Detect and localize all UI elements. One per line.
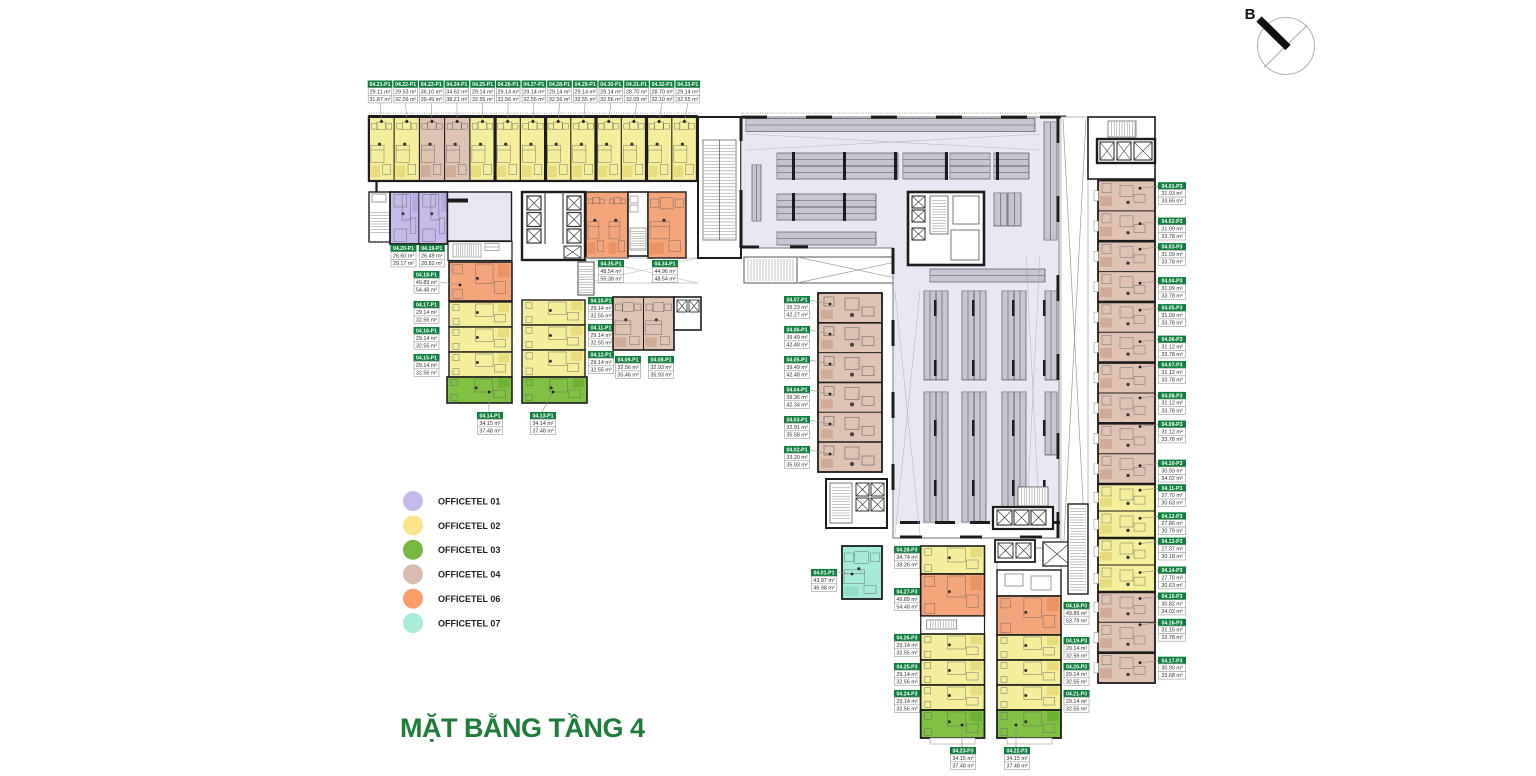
svg-text:04.25-P1: 04.25-P1 — [472, 82, 493, 88]
svg-text:31.09 m²: 31.09 m² — [1161, 252, 1182, 258]
svg-text:29.17 m²: 29.17 m² — [393, 261, 414, 267]
svg-text:31.15 m²: 31.15 m² — [1161, 628, 1182, 634]
svg-text:42.48 m²: 42.48 m² — [786, 342, 807, 348]
svg-text:28.70 m²: 28.70 m² — [626, 89, 647, 95]
svg-text:27.86 m²: 27.86 m² — [1161, 521, 1182, 527]
svg-text:54.48 m²: 54.48 m² — [896, 604, 917, 610]
svg-text:04.25-P3: 04.25-P3 — [896, 665, 917, 671]
svg-text:34.15 m²: 34.15 m² — [1006, 756, 1027, 762]
svg-text:04.32-P1: 04.32-P1 — [652, 82, 673, 88]
svg-text:29.14 m²: 29.14 m² — [896, 672, 917, 678]
svg-text:32.55 m²: 32.55 m² — [590, 367, 611, 373]
svg-text:04.05-P1: 04.05-P1 — [786, 358, 807, 364]
svg-text:04.21-P3: 04.21-P3 — [1066, 692, 1087, 698]
svg-text:48.54 m²: 48.54 m² — [654, 276, 675, 282]
svg-text:29.53 m²: 29.53 m² — [395, 89, 416, 95]
svg-text:33.78 m²: 33.78 m² — [1161, 635, 1182, 641]
svg-text:32.10 m²: 32.10 m² — [651, 97, 672, 103]
svg-text:30.93 m²: 30.93 m² — [1161, 468, 1182, 474]
svg-text:37.48 m²: 37.48 m² — [952, 763, 973, 769]
svg-text:29.14 m²: 29.14 m² — [590, 333, 611, 339]
svg-text:30.18 m²: 30.18 m² — [1161, 554, 1182, 560]
svg-text:OFFICETEL 01: OFFICETEL 01 — [438, 496, 500, 506]
svg-text:39.49 m²: 39.49 m² — [786, 365, 807, 371]
svg-text:29.14 m²: 29.14 m² — [896, 699, 917, 705]
svg-text:55.38 m²: 55.38 m² — [600, 276, 621, 282]
svg-text:39.36 m²: 39.36 m² — [786, 395, 807, 401]
svg-text:04.30-P1: 04.30-P1 — [600, 82, 621, 88]
svg-text:37.48 m²: 37.48 m² — [479, 428, 500, 434]
svg-text:33.78 m²: 33.78 m² — [1161, 377, 1182, 383]
svg-text:38.21 m²: 38.21 m² — [446, 97, 467, 103]
svg-text:33.68 m²: 33.68 m² — [1161, 673, 1182, 679]
svg-text:04.27-P3: 04.27-P3 — [896, 590, 917, 596]
svg-text:04.21-P1: 04.21-P1 — [369, 82, 390, 88]
svg-text:04.13-P1: 04.13-P1 — [532, 414, 553, 420]
svg-text:04.11-P1: 04.11-P1 — [591, 326, 612, 332]
svg-text:04.11-P3: 04.11-P3 — [1162, 486, 1183, 492]
svg-text:31.09 m²: 31.09 m² — [1161, 286, 1182, 292]
svg-text:44.96 m²: 44.96 m² — [654, 269, 675, 275]
svg-text:04.24-P1: 04.24-P1 — [446, 82, 467, 88]
svg-text:04.28-P3: 04.28-P3 — [896, 548, 917, 554]
svg-text:29.14 m²: 29.14 m² — [523, 89, 544, 95]
svg-text:27.70 m²: 27.70 m² — [1161, 575, 1182, 581]
svg-text:MẶT BẰNG TẦNG 4: MẶT BẰNG TẦNG 4 — [400, 712, 645, 743]
svg-text:B: B — [1245, 6, 1256, 23]
svg-text:04.15-P3: 04.15-P3 — [1161, 594, 1182, 600]
svg-text:04.08-P3: 04.08-P3 — [1161, 394, 1182, 400]
svg-text:32.55 m²: 32.55 m² — [523, 97, 544, 103]
svg-text:OFFICETEL 02: OFFICETEL 02 — [438, 521, 500, 531]
svg-text:04.14-P3: 04.14-P3 — [1161, 568, 1182, 574]
svg-text:32.09 m²: 32.09 m² — [626, 97, 647, 103]
svg-text:04.28-P1: 04.28-P1 — [549, 82, 570, 88]
svg-text:32.56 m²: 32.56 m² — [549, 97, 570, 103]
svg-text:04.12-P3: 04.12-P3 — [1161, 514, 1182, 520]
svg-text:32.56 m²: 32.56 m² — [416, 317, 437, 323]
svg-text:31.03 m²: 31.03 m² — [1161, 191, 1182, 197]
svg-text:29.14 m²: 29.14 m² — [416, 363, 437, 369]
svg-text:32.55 m²: 32.55 m² — [1066, 706, 1087, 712]
svg-text:04.02-P3: 04.02-P3 — [1161, 219, 1182, 225]
svg-text:29.14 m²: 29.14 m² — [549, 89, 570, 95]
svg-text:30.63 m²: 30.63 m² — [1161, 501, 1182, 507]
svg-text:29.14 m²: 29.14 m² — [575, 89, 596, 95]
svg-text:29.14 m²: 29.14 m² — [590, 360, 611, 366]
svg-text:31.12 m²: 31.12 m² — [1161, 401, 1182, 407]
svg-text:36.10 m²: 36.10 m² — [421, 89, 442, 95]
svg-text:OFFICETEL 07: OFFICETEL 07 — [438, 618, 500, 628]
svg-text:04.07-P3: 04.07-P3 — [1161, 363, 1182, 369]
svg-text:35.46 m²: 35.46 m² — [617, 372, 638, 378]
svg-text:04.16-P3: 04.16-P3 — [1161, 620, 1182, 626]
svg-text:37.48 m²: 37.48 m² — [532, 428, 553, 434]
svg-text:32.55 m²: 32.55 m² — [416, 343, 437, 349]
svg-text:04.01-P3: 04.01-P3 — [1161, 184, 1182, 190]
svg-text:32.56 m²: 32.56 m² — [896, 679, 917, 685]
svg-text:29.14 m²: 29.14 m² — [472, 89, 493, 95]
svg-text:04.17-P1: 04.17-P1 — [416, 303, 437, 309]
svg-text:04.03-P3: 04.03-P3 — [1161, 245, 1182, 251]
svg-text:29.14 m²: 29.14 m² — [896, 643, 917, 649]
svg-text:04.26-P1: 04.26-P1 — [498, 82, 519, 88]
svg-text:04.04-P1: 04.04-P1 — [786, 388, 807, 394]
svg-text:04.06-P1: 04.06-P1 — [786, 328, 807, 334]
svg-text:29.14 m²: 29.14 m² — [600, 89, 621, 95]
svg-text:35.93 m²: 35.93 m² — [650, 372, 671, 378]
svg-text:49.89 m²: 49.89 m² — [416, 280, 437, 286]
svg-text:04.31-P1: 04.31-P1 — [626, 82, 647, 88]
svg-text:32.93 m²: 32.93 m² — [650, 365, 671, 371]
svg-text:39.49 m²: 39.49 m² — [786, 335, 807, 341]
svg-text:04.35-P1: 04.35-P1 — [600, 262, 621, 268]
svg-text:27.37 m²: 27.37 m² — [1161, 546, 1182, 552]
svg-text:33.78 m²: 33.78 m² — [1161, 437, 1182, 443]
svg-text:31.12 m²: 31.12 m² — [1161, 429, 1182, 435]
svg-text:32.55 m²: 32.55 m² — [1066, 679, 1087, 685]
svg-text:29.14 m²: 29.14 m² — [416, 310, 437, 316]
svg-text:27.70 m²: 27.70 m² — [1161, 493, 1182, 499]
svg-text:32.55 m²: 32.55 m² — [590, 313, 611, 319]
svg-text:43.97 m²: 43.97 m² — [813, 578, 834, 584]
svg-text:04.19-P3: 04.19-P3 — [1066, 639, 1087, 645]
svg-text:42.27 m²: 42.27 m² — [786, 312, 807, 318]
svg-text:04.10-P1: 04.10-P1 — [590, 299, 611, 305]
svg-text:31.09 m²: 31.09 m² — [1161, 226, 1182, 232]
svg-text:26.60 m²: 26.60 m² — [393, 253, 414, 259]
svg-text:29.11 m²: 29.11 m² — [370, 89, 391, 95]
svg-text:33.78 m²: 33.78 m² — [1161, 294, 1182, 300]
svg-text:31.87 m²: 31.87 m² — [369, 97, 390, 103]
svg-text:04.09-P3: 04.09-P3 — [1161, 422, 1182, 428]
svg-text:04.15-P1: 04.15-P1 — [416, 356, 437, 362]
svg-text:29.14 m²: 29.14 m² — [1066, 699, 1087, 705]
svg-text:33.20 m²: 33.20 m² — [786, 455, 807, 461]
svg-text:04.03-P1: 04.03-P1 — [786, 418, 807, 424]
svg-text:04.04-P3: 04.04-P3 — [1161, 279, 1182, 285]
svg-text:04.26-P3: 04.26-P3 — [896, 636, 917, 642]
svg-text:32.56 m²: 32.56 m² — [600, 97, 621, 103]
svg-text:33.78 m²: 33.78 m² — [1161, 321, 1182, 327]
svg-text:35.58 m²: 35.58 m² — [786, 432, 807, 438]
svg-text:04.13-P3: 04.13-P3 — [1161, 539, 1182, 545]
svg-text:04.29-P1: 04.29-P1 — [575, 82, 596, 88]
svg-text:38.26 m²: 38.26 m² — [896, 562, 917, 568]
svg-text:32.09 m²: 32.09 m² — [395, 97, 416, 103]
svg-text:34.15 m²: 34.15 m² — [952, 756, 973, 762]
svg-text:OFFICETEL 06: OFFICETEL 06 — [438, 594, 500, 604]
svg-text:31.12 m²: 31.12 m² — [1161, 344, 1182, 350]
svg-text:04.10-P3: 04.10-P3 — [1161, 461, 1182, 467]
svg-text:34.15 m²: 34.15 m² — [479, 421, 500, 427]
svg-text:OFFICETEL 03: OFFICETEL 03 — [438, 545, 500, 555]
svg-text:04.22-P3: 04.22-P3 — [1006, 749, 1027, 755]
svg-text:32.55 m²: 32.55 m² — [677, 97, 698, 103]
svg-text:04.33-P1: 04.33-P1 — [677, 82, 698, 88]
svg-text:29.14 m²: 29.14 m² — [1066, 672, 1087, 678]
svg-text:04.24-P3: 04.24-P3 — [896, 692, 917, 698]
svg-text:04.14-P1: 04.14-P1 — [479, 414, 500, 420]
svg-text:48.54 m²: 48.54 m² — [600, 269, 621, 275]
svg-text:46.98 m²: 46.98 m² — [813, 585, 834, 591]
svg-text:34.14 m²: 34.14 m² — [532, 421, 553, 427]
svg-text:33.65 m²: 33.65 m² — [1161, 199, 1182, 205]
svg-text:04.02-P1: 04.02-P1 — [786, 448, 807, 454]
svg-text:35.93 m²: 35.93 m² — [786, 462, 807, 468]
svg-text:54.48 m²: 54.48 m² — [416, 287, 437, 293]
svg-text:04.05-P3: 04.05-P3 — [1161, 306, 1182, 312]
svg-text:26.49 m²: 26.49 m² — [421, 253, 442, 259]
svg-text:04.18-P3: 04.18-P3 — [1066, 604, 1087, 610]
svg-text:33.78 m²: 33.78 m² — [1161, 352, 1182, 358]
svg-text:53.79 m²: 53.79 m² — [1066, 618, 1087, 624]
svg-text:31.12 m²: 31.12 m² — [1161, 370, 1182, 376]
svg-text:04.08-P1: 04.08-P1 — [650, 358, 671, 364]
svg-text:04.01-P1: 04.01-P1 — [813, 571, 834, 577]
svg-text:30.63 m²: 30.63 m² — [1161, 583, 1182, 589]
svg-text:34.74 m²: 34.74 m² — [896, 555, 917, 561]
svg-text:04.34-P1: 04.34-P1 — [654, 262, 675, 268]
svg-text:04.12-P1: 04.12-P1 — [590, 353, 611, 359]
svg-text:34.62 m²: 34.62 m² — [446, 89, 467, 95]
svg-text:42.34 m²: 42.34 m² — [786, 402, 807, 408]
svg-text:04.06-P3: 04.06-P3 — [1161, 337, 1182, 343]
svg-text:32.91 m²: 32.91 m² — [786, 425, 807, 431]
svg-text:29.14 m²: 29.14 m² — [498, 89, 519, 95]
svg-text:39.23 m²: 39.23 m² — [786, 305, 807, 311]
svg-text:04.23-P3: 04.23-P3 — [952, 749, 973, 755]
svg-text:33.78 m²: 33.78 m² — [1161, 260, 1182, 266]
svg-text:04.22-P1: 04.22-P1 — [395, 82, 416, 88]
svg-text:04.07-P1: 04.07-P1 — [786, 298, 807, 304]
svg-text:04.16-P1: 04.16-P1 — [416, 329, 437, 335]
svg-text:37.48 m²: 37.48 m² — [1006, 763, 1027, 769]
svg-text:28.82 m²: 28.82 m² — [421, 261, 442, 267]
svg-text:30.79 m²: 30.79 m² — [1161, 529, 1182, 535]
svg-text:33.78 m²: 33.78 m² — [1161, 408, 1182, 414]
svg-text:04.17-P3: 04.17-P3 — [1161, 658, 1182, 664]
svg-text:42.48 m²: 42.48 m² — [786, 372, 807, 378]
svg-text:29.14 m²: 29.14 m² — [590, 306, 611, 312]
svg-text:04.27-P1: 04.27-P1 — [523, 82, 544, 88]
svg-text:34.02 m²: 34.02 m² — [1161, 476, 1182, 482]
svg-text:32.56 m²: 32.56 m² — [416, 370, 437, 376]
svg-text:32.55 m²: 32.55 m² — [590, 340, 611, 346]
svg-text:29.14 m²: 29.14 m² — [1066, 646, 1087, 652]
svg-text:32.56 m²: 32.56 m² — [498, 97, 519, 103]
svg-text:04.23-P1: 04.23-P1 — [421, 82, 442, 88]
svg-text:29.14 m²: 29.14 m² — [677, 89, 698, 95]
svg-text:49.89 m²: 49.89 m² — [896, 597, 917, 603]
svg-text:30.82 m²: 30.82 m² — [1161, 601, 1182, 607]
svg-text:32.56 m²: 32.56 m² — [617, 365, 638, 371]
svg-text:31.09 m²: 31.09 m² — [1161, 313, 1182, 319]
svg-text:32.55 m²: 32.55 m² — [575, 97, 596, 103]
svg-text:OFFICETEL 04: OFFICETEL 04 — [438, 570, 500, 580]
svg-text:34.02 m²: 34.02 m² — [1161, 609, 1182, 615]
svg-text:49.89 m²: 49.89 m² — [1066, 611, 1087, 617]
svg-text:30.90 m²: 30.90 m² — [1161, 666, 1182, 672]
svg-text:32.55 m²: 32.55 m² — [472, 97, 493, 103]
svg-text:28.70 m²: 28.70 m² — [651, 89, 672, 95]
svg-text:39.49 m²: 39.49 m² — [421, 97, 442, 103]
svg-text:29.14 m²: 29.14 m² — [416, 336, 437, 342]
svg-text:33.78 m²: 33.78 m² — [1161, 234, 1182, 240]
svg-text:32.55 m²: 32.55 m² — [896, 650, 917, 656]
svg-text:04.20-P3: 04.20-P3 — [1066, 665, 1087, 671]
svg-text:04.18-P1: 04.18-P1 — [416, 273, 437, 279]
svg-text:32.56 m²: 32.56 m² — [896, 706, 917, 712]
svg-text:04.19-P1: 04.19-P1 — [421, 246, 442, 252]
svg-text:04.09-P1: 04.09-P1 — [617, 358, 638, 364]
svg-text:32.56 m²: 32.56 m² — [1066, 653, 1087, 659]
svg-text:04.20-P1: 04.20-P1 — [393, 246, 414, 252]
